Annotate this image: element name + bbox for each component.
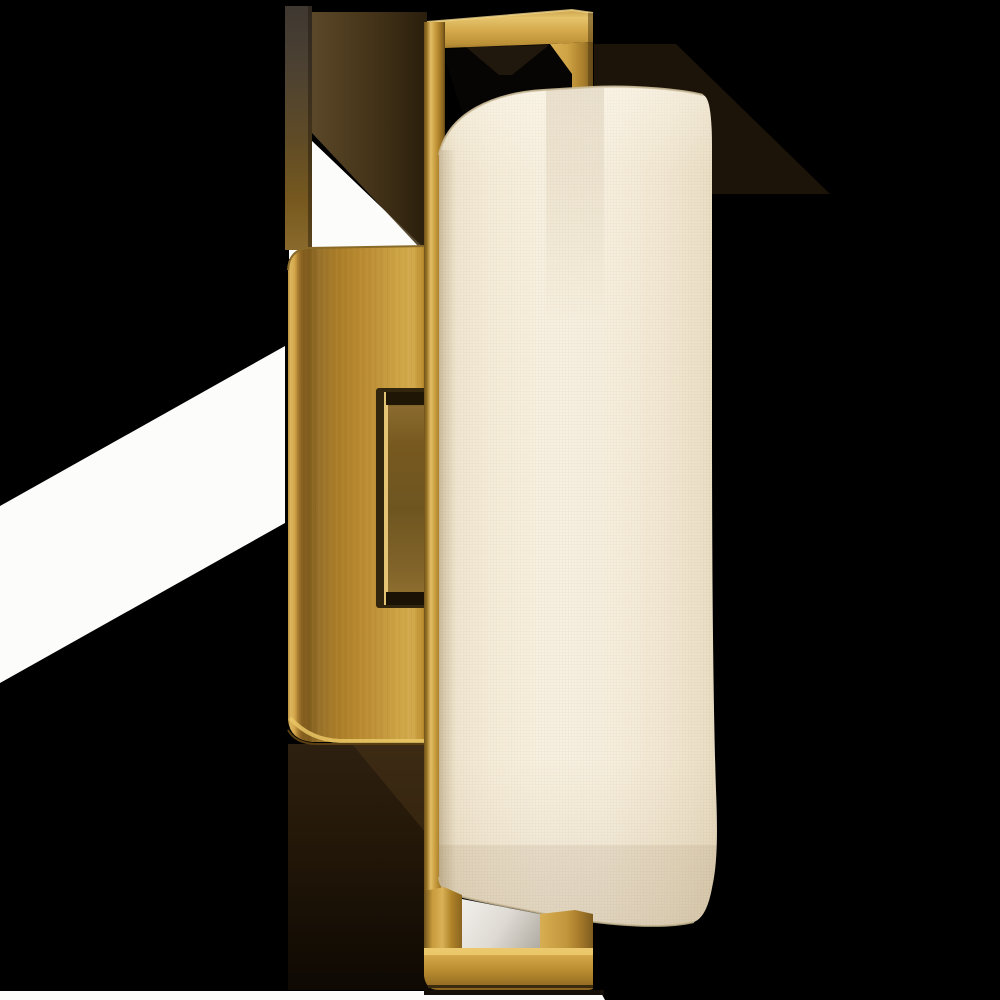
connector-bar-bottom-cap <box>386 592 428 605</box>
bottom-bracket-under-shadow <box>424 990 604 995</box>
bottom-bracket-bar-bottom-edge <box>428 985 593 988</box>
bottom-bracket-left-post <box>424 887 462 948</box>
shade-post-shadow <box>546 88 604 318</box>
product-photo: black backdrop white masked band, left e… <box>0 0 1000 1000</box>
connector-bar <box>386 392 428 605</box>
shade-left-inner-shadow <box>437 150 456 890</box>
bottom-bracket-bar-highlight <box>424 948 593 955</box>
connector-bar-left-highlight <box>384 392 388 605</box>
wall-shadow-strip-fill <box>285 6 312 250</box>
wall-shadow-strip: dark vertical wall shadow strip <box>285 6 312 250</box>
connector-bar-top-cap <box>386 392 428 405</box>
sconce-illustration: black backdrop white masked band, left e… <box>0 0 1000 1000</box>
wall-shadow-strip-edge <box>308 6 312 250</box>
connector: raised brass connector bar on backplate <box>376 388 430 608</box>
